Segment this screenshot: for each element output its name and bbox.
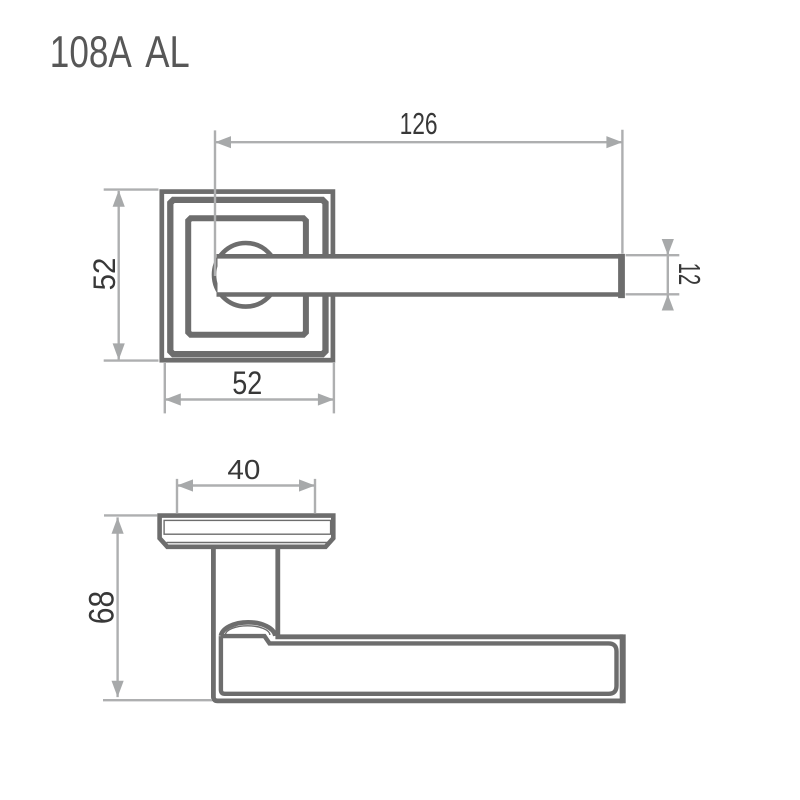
svg-text:68: 68 [83,591,122,625]
svg-text:126: 126 [400,107,438,141]
svg-text:AL: AL [145,28,190,77]
svg-text:52: 52 [232,365,262,401]
svg-text:12: 12 [672,263,707,286]
svg-text:108A: 108A [50,28,132,77]
svg-text:40: 40 [227,454,260,485]
svg-text:52: 52 [86,258,122,291]
